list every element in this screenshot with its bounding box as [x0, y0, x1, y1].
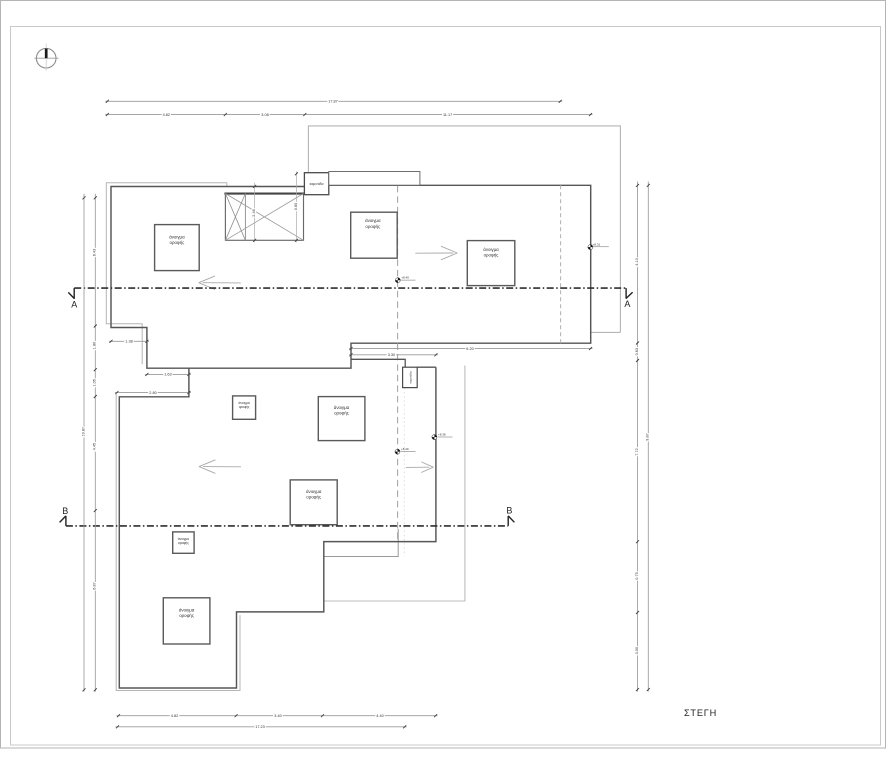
svg-text:A: A: [624, 299, 630, 309]
svg-text:οροφής: οροφής: [178, 541, 189, 545]
svg-text:+8.40: +8.40: [401, 276, 409, 280]
svg-text:0.60: 0.60: [294, 203, 298, 210]
svg-text:1.80: 1.80: [93, 342, 97, 349]
svg-text:3.00: 3.00: [635, 647, 639, 654]
svg-text:6.20: 6.20: [466, 347, 473, 351]
svg-text:οροφής: οροφής: [306, 495, 321, 500]
svg-text:+8.31: +8.31: [593, 243, 601, 247]
svg-text:+8.38: +8.38: [438, 433, 446, 437]
svg-text:1.38: 1.38: [125, 340, 132, 344]
svg-text:4.13: 4.13: [635, 258, 639, 265]
svg-text:9.87: 9.87: [646, 433, 650, 440]
svg-text:+8.40: +8.40: [401, 447, 409, 451]
svg-text:καμινάδα: καμινάδα: [408, 371, 412, 383]
svg-text:άνοιγμα: άνοιγμα: [334, 405, 350, 410]
svg-text:0.63: 0.63: [635, 348, 639, 355]
svg-text:άνοιγμα: άνοιγμα: [169, 235, 185, 240]
svg-text:οροφής: οροφής: [334, 411, 349, 416]
svg-text:άνοιγμα: άνοιγμα: [306, 489, 322, 494]
svg-text:οροφής: οροφής: [239, 405, 250, 409]
svg-text:7.72: 7.72: [635, 448, 639, 455]
svg-text:3.08: 3.08: [261, 113, 268, 117]
svg-text:19.87: 19.87: [81, 427, 85, 437]
svg-text:4.82: 4.82: [171, 714, 178, 718]
svg-text:καμινάδα: καμινάδα: [310, 182, 324, 186]
svg-text:άνοιγμα: άνοιγμα: [483, 247, 499, 252]
svg-text:0.75: 0.75: [635, 572, 639, 579]
svg-text:2.46: 2.46: [252, 209, 256, 216]
svg-text:άνοιγμα: άνοιγμα: [365, 218, 381, 223]
svg-text:3.30: 3.30: [388, 353, 395, 357]
svg-text:2.80: 2.80: [149, 391, 156, 395]
svg-text:4.82: 4.82: [163, 113, 170, 117]
svg-text:6.87: 6.87: [93, 582, 97, 589]
svg-text:6.43: 6.43: [93, 249, 97, 256]
svg-text:B: B: [506, 506, 512, 516]
svg-text:οροφής: οροφής: [365, 224, 380, 229]
svg-text:4.45: 4.45: [93, 443, 97, 450]
svg-text:1.05: 1.05: [93, 379, 97, 386]
svg-text:οροφής: οροφής: [179, 613, 194, 618]
svg-text:3.40: 3.40: [274, 714, 281, 718]
svg-text:B: B: [62, 506, 68, 516]
svg-text:11.17: 11.17: [443, 113, 452, 117]
svg-text:άνοιγμα: άνοιγμα: [179, 608, 195, 613]
svg-text:A: A: [71, 299, 77, 309]
svg-text:17.23: 17.23: [255, 725, 265, 729]
svg-text:4.40: 4.40: [376, 714, 383, 718]
svg-text:ΣΤΕΓΗ: ΣΤΕΓΗ: [684, 708, 717, 718]
svg-text:1.63: 1.63: [164, 373, 171, 377]
svg-text:17.87: 17.87: [328, 100, 338, 104]
svg-text:οροφής: οροφής: [484, 252, 499, 257]
svg-text:οροφής: οροφής: [170, 240, 185, 245]
